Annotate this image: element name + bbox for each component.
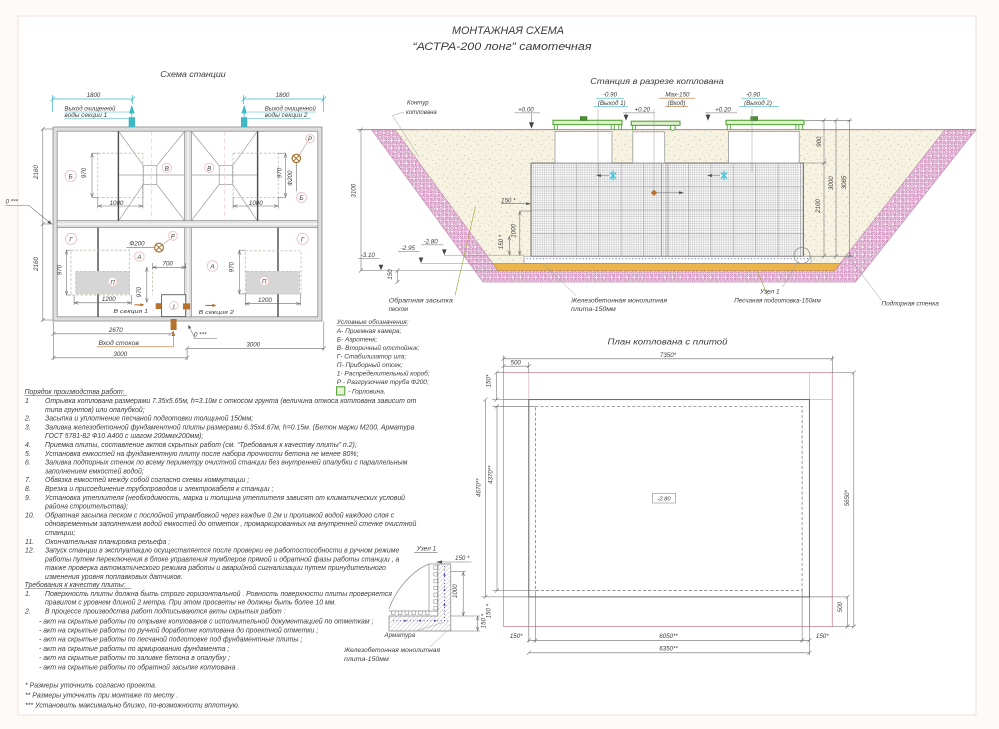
svg-text:Поверхность плиты должна быть: Поверхность плиты должна быть строго гор… — [45, 590, 392, 598]
svg-text:8.: 8. — [25, 486, 31, 493]
svg-text:Вход стоков: Вход стоков — [99, 340, 140, 347]
svg-text:150 *: 150 * — [480, 613, 487, 628]
svg-text:ГОСТ 5781-82 Ф10 А400 с шагом: ГОСТ 5781-82 Ф10 А400 с шагом 200ммх200м… — [45, 433, 203, 440]
svg-text:Железобетонная монолитная: Железобетонная монолитная — [343, 646, 441, 654]
svg-text:1000: 1000 — [110, 200, 124, 207]
svg-text:10.: 10. — [25, 512, 35, 519]
svg-text:500: 500 — [511, 359, 522, 366]
svg-text:А: А — [209, 264, 214, 271]
svg-text:3100: 3100 — [351, 183, 358, 197]
svg-text:3000: 3000 — [113, 351, 127, 358]
svg-text:3000: 3000 — [828, 176, 835, 190]
svg-text:Выход очищенной: Выход очищенной — [65, 106, 117, 113]
svg-text:План котлована с плитой: План котлована с плитой — [608, 338, 729, 347]
svg-text:“АСТРА-200 лонг” самотечная: “АСТРА-200 лонг” самотечная — [413, 41, 592, 53]
svg-text:*** Установить максимально бли: *** Установить максимально близко, по-во… — [25, 702, 240, 710]
svg-text:П- Приборный отсек;: П- Приборный отсек; — [337, 361, 403, 369]
svg-text:- акт на скрытые работы по арм: - акт на скрытые работы по армированию ф… — [39, 645, 229, 653]
svg-text:11.: 11. — [25, 539, 34, 546]
svg-text:2.: 2. — [24, 416, 31, 423]
svg-text:Контур: Контур — [407, 100, 429, 107]
svg-text:Б: Б — [299, 195, 303, 202]
svg-text:4.: 4. — [25, 442, 31, 449]
svg-text:1: 1 — [172, 304, 175, 310]
svg-text:- акт на скрытые работы по зал: - акт на скрытые работы по заливке бетон… — [39, 654, 230, 662]
svg-text:700: 700 — [163, 261, 174, 268]
svg-text:Обратная засыпка: Обратная засыпка — [389, 297, 453, 305]
svg-text:1000: 1000 — [452, 584, 459, 598]
svg-text:котлована: котлована — [406, 109, 437, 116]
svg-text:+0.20: +0.20 — [715, 106, 731, 113]
svg-text:воды секции 2: воды секции 2 — [265, 113, 308, 119]
svg-text:7.: 7. — [25, 477, 31, 484]
svg-text:7350*: 7350* — [660, 352, 677, 359]
svg-text:(Выход 2): (Выход 2) — [744, 100, 772, 107]
svg-text:-2.95: -2.95 — [401, 245, 416, 252]
svg-text:- акт на скрытые работы по пес: - акт на скрытые работы по песчаной подг… — [39, 636, 302, 644]
svg-text:1000: 1000 — [249, 200, 263, 207]
svg-text:- акт на скрытые работы по отр: - акт на скрытые работы по отрывке котло… — [39, 617, 374, 625]
svg-text:1800: 1800 — [87, 92, 101, 99]
svg-text:2670: 2670 — [108, 327, 123, 334]
svg-text:МОНТАЖНАЯ СХЕМА: МОНТАЖНАЯ СХЕМА — [452, 25, 564, 37]
svg-text:0 ***: 0 *** — [6, 199, 19, 206]
svg-text:Р: Р — [308, 137, 312, 143]
svg-text:150*: 150* — [485, 374, 492, 387]
svg-text:А- Приемная камера;: А- Приемная камера; — [336, 328, 402, 335]
svg-text:-0.90: -0.90 — [603, 92, 618, 99]
svg-text:6050**: 6050** — [659, 633, 678, 640]
svg-text:1000: 1000 — [511, 223, 518, 237]
svg-text:Засыпка и уплотнение песчаной: Засыпка и уплотнение песчаной подготовки… — [45, 415, 253, 423]
svg-text:также проверка автоматического: также проверка автоматического режима ра… — [45, 564, 386, 572]
svg-text:В секция 1: В секция 1 — [113, 309, 148, 315]
svg-text:П: П — [110, 280, 115, 286]
svg-text:970: 970 — [81, 167, 88, 178]
svg-text:Б: Б — [69, 173, 73, 180]
svg-text:Г: Г — [69, 236, 73, 243]
svg-text:Порядок производства работ:: Порядок производства работ: — [25, 388, 125, 396]
svg-text:Требования к качеству плиты:: Требования к качеству плиты: — [25, 581, 126, 589]
svg-text:6350**: 6350** — [659, 646, 678, 653]
svg-text:6.: 6. — [25, 460, 31, 467]
svg-text:одновременным заполнением водо: одновременным заполнением водой емкостей… — [45, 520, 416, 528]
svg-text:плита-150мм: плита-150мм — [344, 656, 389, 663]
svg-text:4370**: 4370** — [487, 465, 494, 484]
svg-text:(Выход 1): (Выход 1) — [598, 100, 626, 107]
svg-text:1: 1 — [25, 398, 29, 405]
svg-text:П: П — [262, 280, 267, 286]
svg-text:12.: 12. — [25, 548, 35, 555]
svg-text:* Размеры уточнить согласно пр: * Размеры уточнить согласно проекта. — [25, 683, 157, 690]
svg-text:970: 970 — [136, 286, 143, 297]
svg-text:** Размеры уточнить при монтаж: ** Размеры уточнить при монтаже по месту… — [25, 692, 178, 699]
svg-text:В: В — [207, 165, 211, 172]
svg-text:В: В — [165, 165, 169, 172]
svg-text:Приемка плиты, составление акт: Приемка плиты, составление актов скрытых… — [45, 441, 357, 449]
svg-text:5650*: 5650* — [844, 490, 851, 507]
svg-text:Обвязка емкостей между собой с: Обвязка емкостей между собой согласно сх… — [45, 476, 249, 484]
svg-text:Р: Р — [171, 234, 175, 240]
svg-text:Заливка подпорных стенок по вс: Заливка подпорных стенок по всему периме… — [45, 459, 408, 467]
svg-text:В секция 2: В секция 2 — [199, 310, 235, 316]
svg-text:правилом с уровнем длиной 2 ме: правилом с уровнем длиной 2 метра. При э… — [45, 599, 336, 607]
svg-text:Арматура: Арматура — [383, 632, 415, 639]
svg-text:1200: 1200 — [258, 297, 272, 304]
svg-text:Мах-150: Мах-150 — [665, 92, 690, 99]
svg-text:района строительства);: района строительства); — [44, 503, 128, 511]
svg-text:970: 970 — [277, 167, 284, 178]
svg-text:150*: 150* — [816, 633, 829, 640]
svg-text:Установка емкостей на фундамен: Установка емкостей на фундаментную плиту… — [44, 450, 358, 458]
svg-text:Г- Стабилизатор ила;: Г- Стабилизатор ила; — [337, 352, 407, 360]
svg-text:3085: 3085 — [841, 175, 848, 189]
svg-text:1- Распределительный короб;: 1- Распределительный короб; — [337, 369, 430, 377]
svg-text:150 *: 150 * — [455, 555, 470, 562]
svg-text:В- Вторичный отстойник;: В- Вторичный отстойник; — [337, 344, 420, 352]
svg-text:Г: Г — [301, 236, 305, 243]
svg-text:(Вход): (Вход) — [668, 100, 686, 107]
svg-text:970: 970 — [57, 264, 64, 275]
svg-text:Выход очищенной: Выход очищенной — [265, 106, 317, 113]
svg-text:Окончательная планировка релье: Окончательная планировка рельефа ; — [45, 539, 170, 546]
svg-text:Врезка и присоединение трубопр: Врезка и присоединение трубопроводов и э… — [45, 485, 274, 493]
svg-text:В процессе производства работ: В процессе производства работ подписываю… — [45, 607, 286, 615]
svg-text:900: 900 — [816, 136, 823, 147]
svg-text:-0.90: -0.90 — [746, 92, 761, 99]
svg-text:9.: 9. — [25, 495, 31, 502]
svg-text:Ф200: Ф200 — [287, 170, 294, 186]
svg-text:Узел 1: Узел 1 — [416, 546, 437, 553]
svg-text:Железобетонная монолитная: Железобетонная монолитная — [570, 297, 668, 305]
svg-text:1200: 1200 — [102, 296, 116, 303]
svg-text:2100: 2100 — [815, 199, 822, 214]
svg-text:Узел 1: Узел 1 — [759, 288, 780, 295]
svg-text:970: 970 — [228, 261, 235, 272]
svg-text:типа грунтов) или опалубкой;: типа грунтов) или опалубкой; — [45, 406, 145, 414]
svg-text:изменения уровня поплавковых д: изменения уровня поплавковых датчиков. — [45, 573, 183, 581]
svg-text:-3.10: -3.10 — [361, 252, 376, 259]
svg-text:5.: 5. — [25, 451, 31, 458]
svg-text:работы путем переключения в бл: работы путем переключения в блоке управл… — [44, 555, 399, 563]
svg-text:-2.80: -2.80 — [424, 238, 439, 245]
svg-text:+0.20: +0.20 — [634, 106, 650, 113]
svg-text:Б- Аэротенк;: Б- Аэротенк; — [337, 336, 378, 343]
svg-text:Отрывка котлована размерами 7.: Отрывка котлована размерами 7.35х5.65м, … — [45, 398, 417, 405]
svg-text:4670**: 4670** — [476, 478, 483, 497]
svg-text:0 ***: 0 *** — [194, 332, 207, 339]
svg-text:Схема станции: Схема станции — [160, 70, 226, 79]
svg-text:заполнением емкостей водой;: заполнением емкостей водой; — [44, 467, 144, 475]
svg-text:- акт на скрытые работы по руч: - акт на скрытые работы по ручной дорабо… — [39, 627, 318, 635]
svg-text:Обратная засыпка песком с посл: Обратная засыпка песком с послойной утра… — [45, 511, 395, 519]
svg-text:станции;: станции; — [45, 530, 75, 537]
svg-text:Запуск станции в эксплуатацию: Запуск станции в эксплуатацию осуществля… — [45, 547, 399, 555]
svg-text:А: А — [136, 254, 141, 261]
svg-text:1.: 1. — [25, 591, 31, 598]
svg-text:-2.80: -2.80 — [657, 497, 671, 503]
svg-text:2.: 2. — [24, 608, 31, 615]
svg-text:+0.00: +0.00 — [518, 106, 534, 113]
svg-text:воды секции 1: воды секции 1 — [65, 113, 108, 119]
svg-text:1800: 1800 — [276, 92, 290, 99]
svg-text:песком: песком — [389, 306, 409, 313]
svg-text:150 *: 150 * — [501, 197, 516, 204]
svg-text:- Горловина.: - Горловина. — [348, 388, 386, 395]
svg-text:плита-150мм: плита-150мм — [571, 306, 616, 313]
svg-text:3000: 3000 — [246, 341, 260, 348]
svg-text:- акт на скрытые работы по обр: - акт на скрытые работы по обратной засы… — [39, 663, 239, 671]
svg-text:Условные обозначения:: Условные обозначения: — [336, 318, 409, 326]
svg-text:2160: 2160 — [33, 257, 40, 272]
svg-text:Станция в разрезе котлована: Станция в разрезе котлована — [590, 77, 724, 86]
svg-text:Установка утеплителя (необходи: Установка утеплителя (необходимость, мар… — [44, 494, 405, 502]
svg-text:Подпорная стенка: Подпорная стенка — [881, 300, 939, 308]
svg-text:Песчаная подготовка-150мм: Песчаная подготовка-150мм — [734, 297, 821, 305]
svg-text:150*: 150* — [510, 633, 523, 640]
svg-text:Ф200: Ф200 — [129, 240, 145, 247]
svg-text:3.: 3. — [25, 424, 31, 431]
svg-text:Заливка железобетонной фундаме: Заливка железобетонной фундаментной плит… — [45, 423, 415, 431]
svg-text:500: 500 — [837, 601, 844, 612]
svg-text:150: 150 — [387, 269, 394, 280]
svg-text:Р - Разгрузочная труба Ф200;: Р - Разгрузочная труба Ф200; — [337, 378, 429, 386]
svg-text:150 *: 150 * — [498, 234, 505, 249]
svg-text:2160: 2160 — [33, 165, 40, 180]
